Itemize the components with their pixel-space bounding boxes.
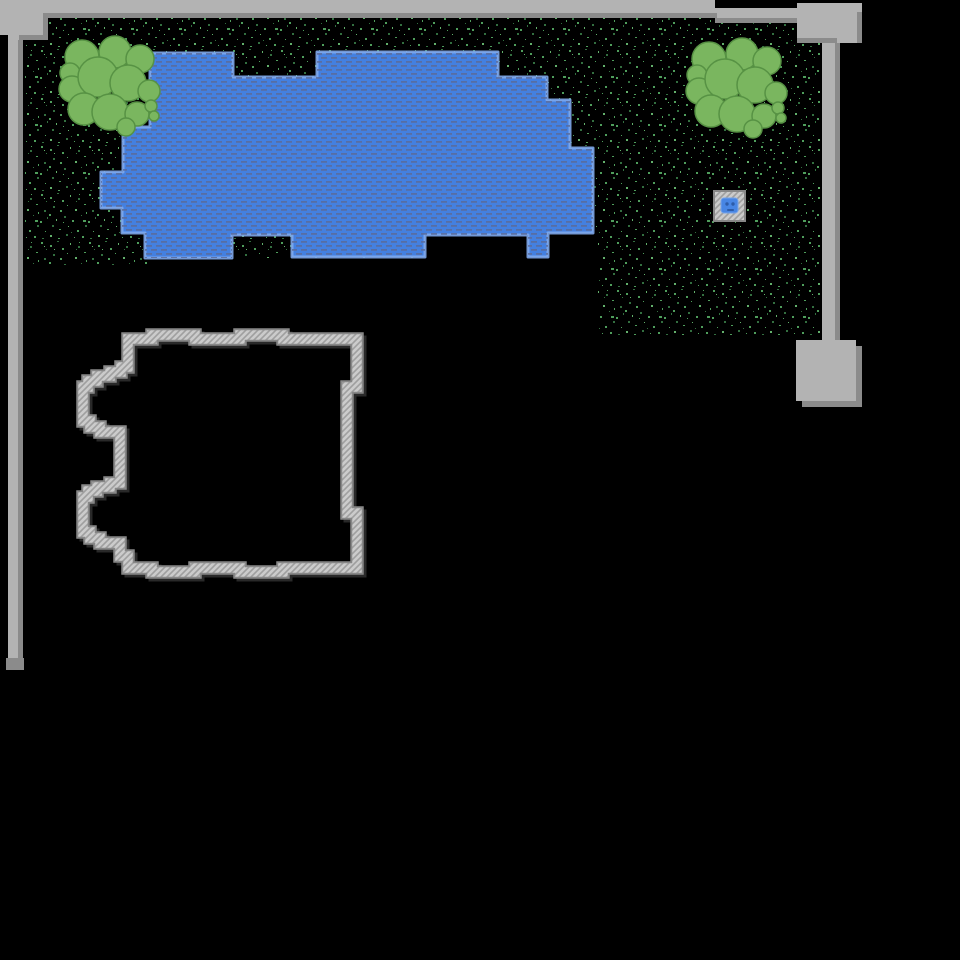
perimeter-wall-top-right[interactable] — [715, 8, 797, 18]
map-canvas[interactable] — [0, 0, 960, 960]
perimeter-wall-left[interactable] — [8, 35, 19, 660]
corner-pillar-nw[interactable] — [0, 0, 43, 35]
trough-face-eye — [725, 202, 728, 205]
gate-block-ne-shadow-right — [857, 12, 862, 43]
perimeter-wall-top-inner-edge — [43, 13, 717, 18]
tree-icon — [59, 36, 160, 136]
trough-face-eye — [731, 202, 734, 205]
gate-block-ne[interactable] — [797, 3, 862, 43]
tree-ne[interactable] — [686, 38, 787, 138]
tree-icon — [686, 38, 787, 138]
gate-block-se-shadow-bottom — [802, 401, 862, 407]
lake[interactable] — [101, 52, 593, 258]
gate-block-se-shadow-right — [856, 346, 862, 407]
corner-pillar-nw-edge-bottom — [18, 35, 48, 40]
perimeter-wall-right-strip[interactable] — [822, 43, 835, 340]
perimeter-wall-left-inner-edge — [18, 40, 23, 665]
perimeter-wall-right-strip-edge — [835, 43, 840, 340]
perimeter-wall-top[interactable] — [0, 0, 715, 13]
perimeter-wall-left-end-cap — [6, 658, 24, 670]
perimeter-wall-top-right-inner-edge — [715, 18, 797, 23]
tree-nw[interactable] — [59, 36, 160, 136]
gate-block-se[interactable] — [796, 340, 856, 401]
water-trough-marker[interactable] — [714, 191, 745, 221]
trough-face-mouth — [727, 209, 734, 211]
lake-ripple-overlay — [101, 52, 593, 258]
gate-block-ne-shadow-bottom — [797, 38, 837, 43]
